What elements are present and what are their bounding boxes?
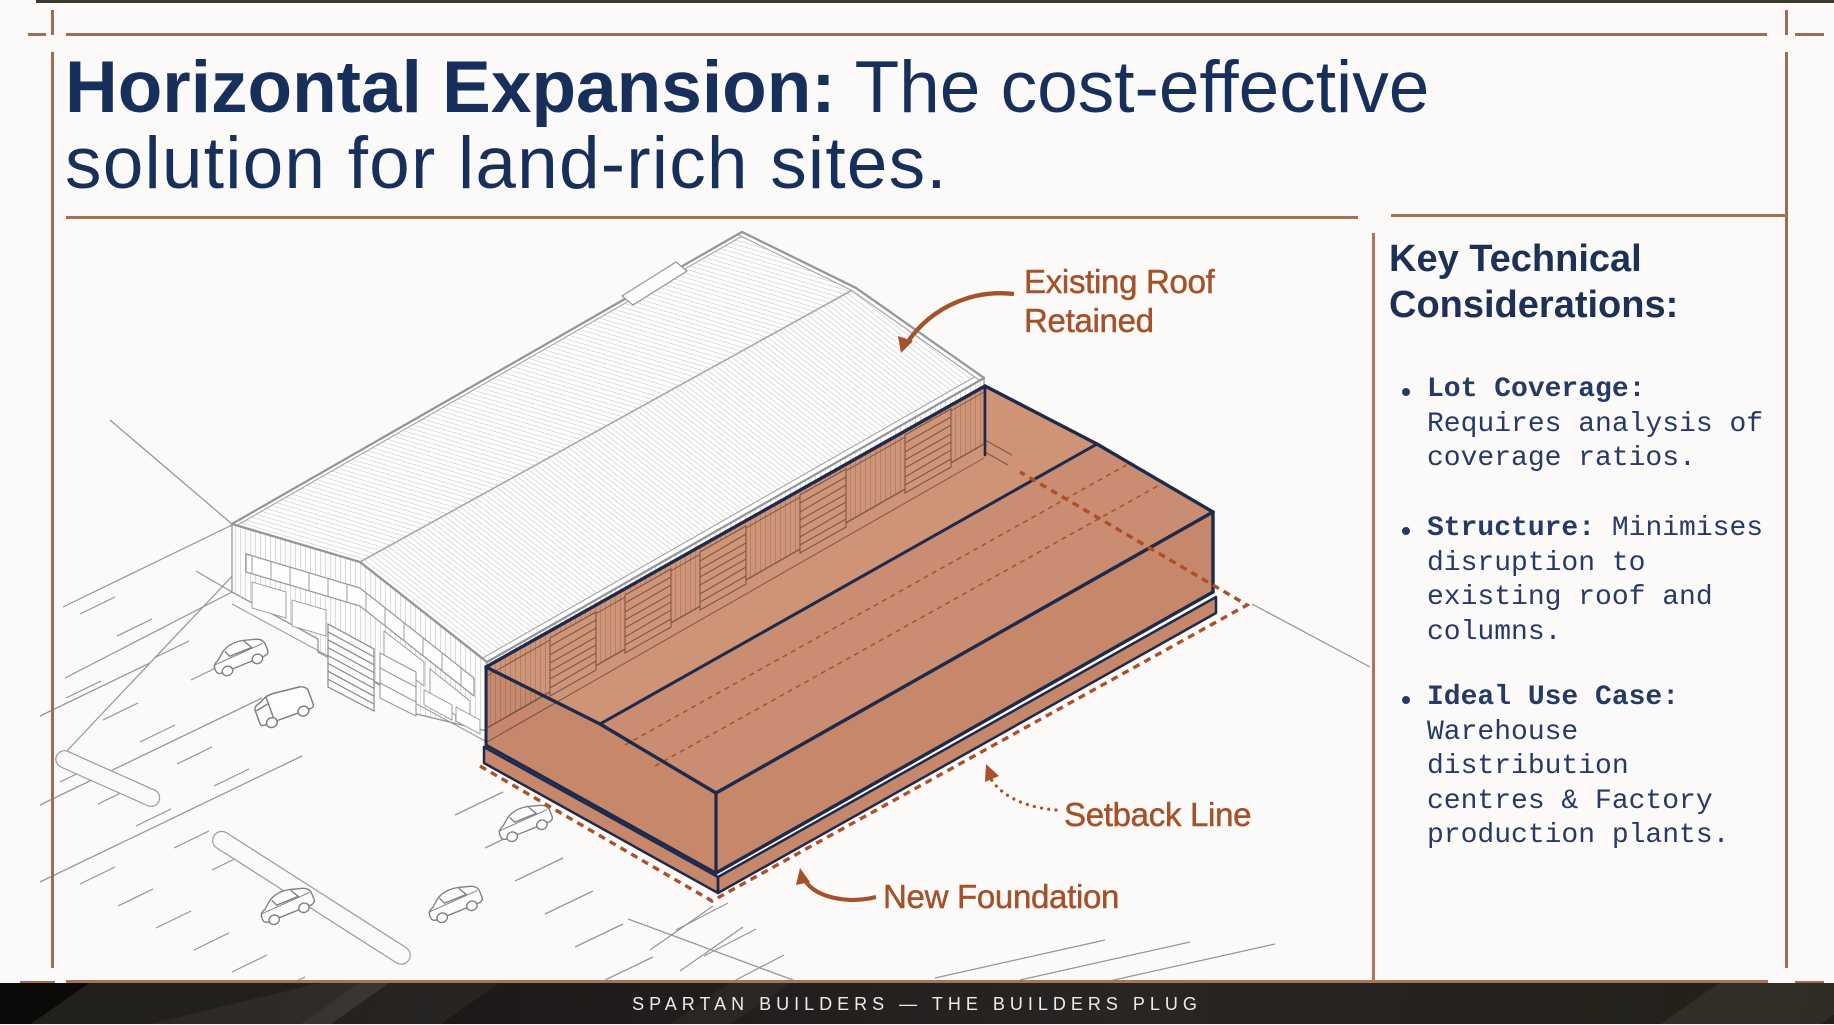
svg-text:New Foundation: New Foundation	[883, 878, 1119, 915]
svg-text:Setback Line: Setback Line	[1064, 796, 1251, 833]
svg-text:Retained: Retained	[1024, 302, 1154, 339]
svg-text:Existing Roof: Existing Roof	[1024, 263, 1216, 300]
